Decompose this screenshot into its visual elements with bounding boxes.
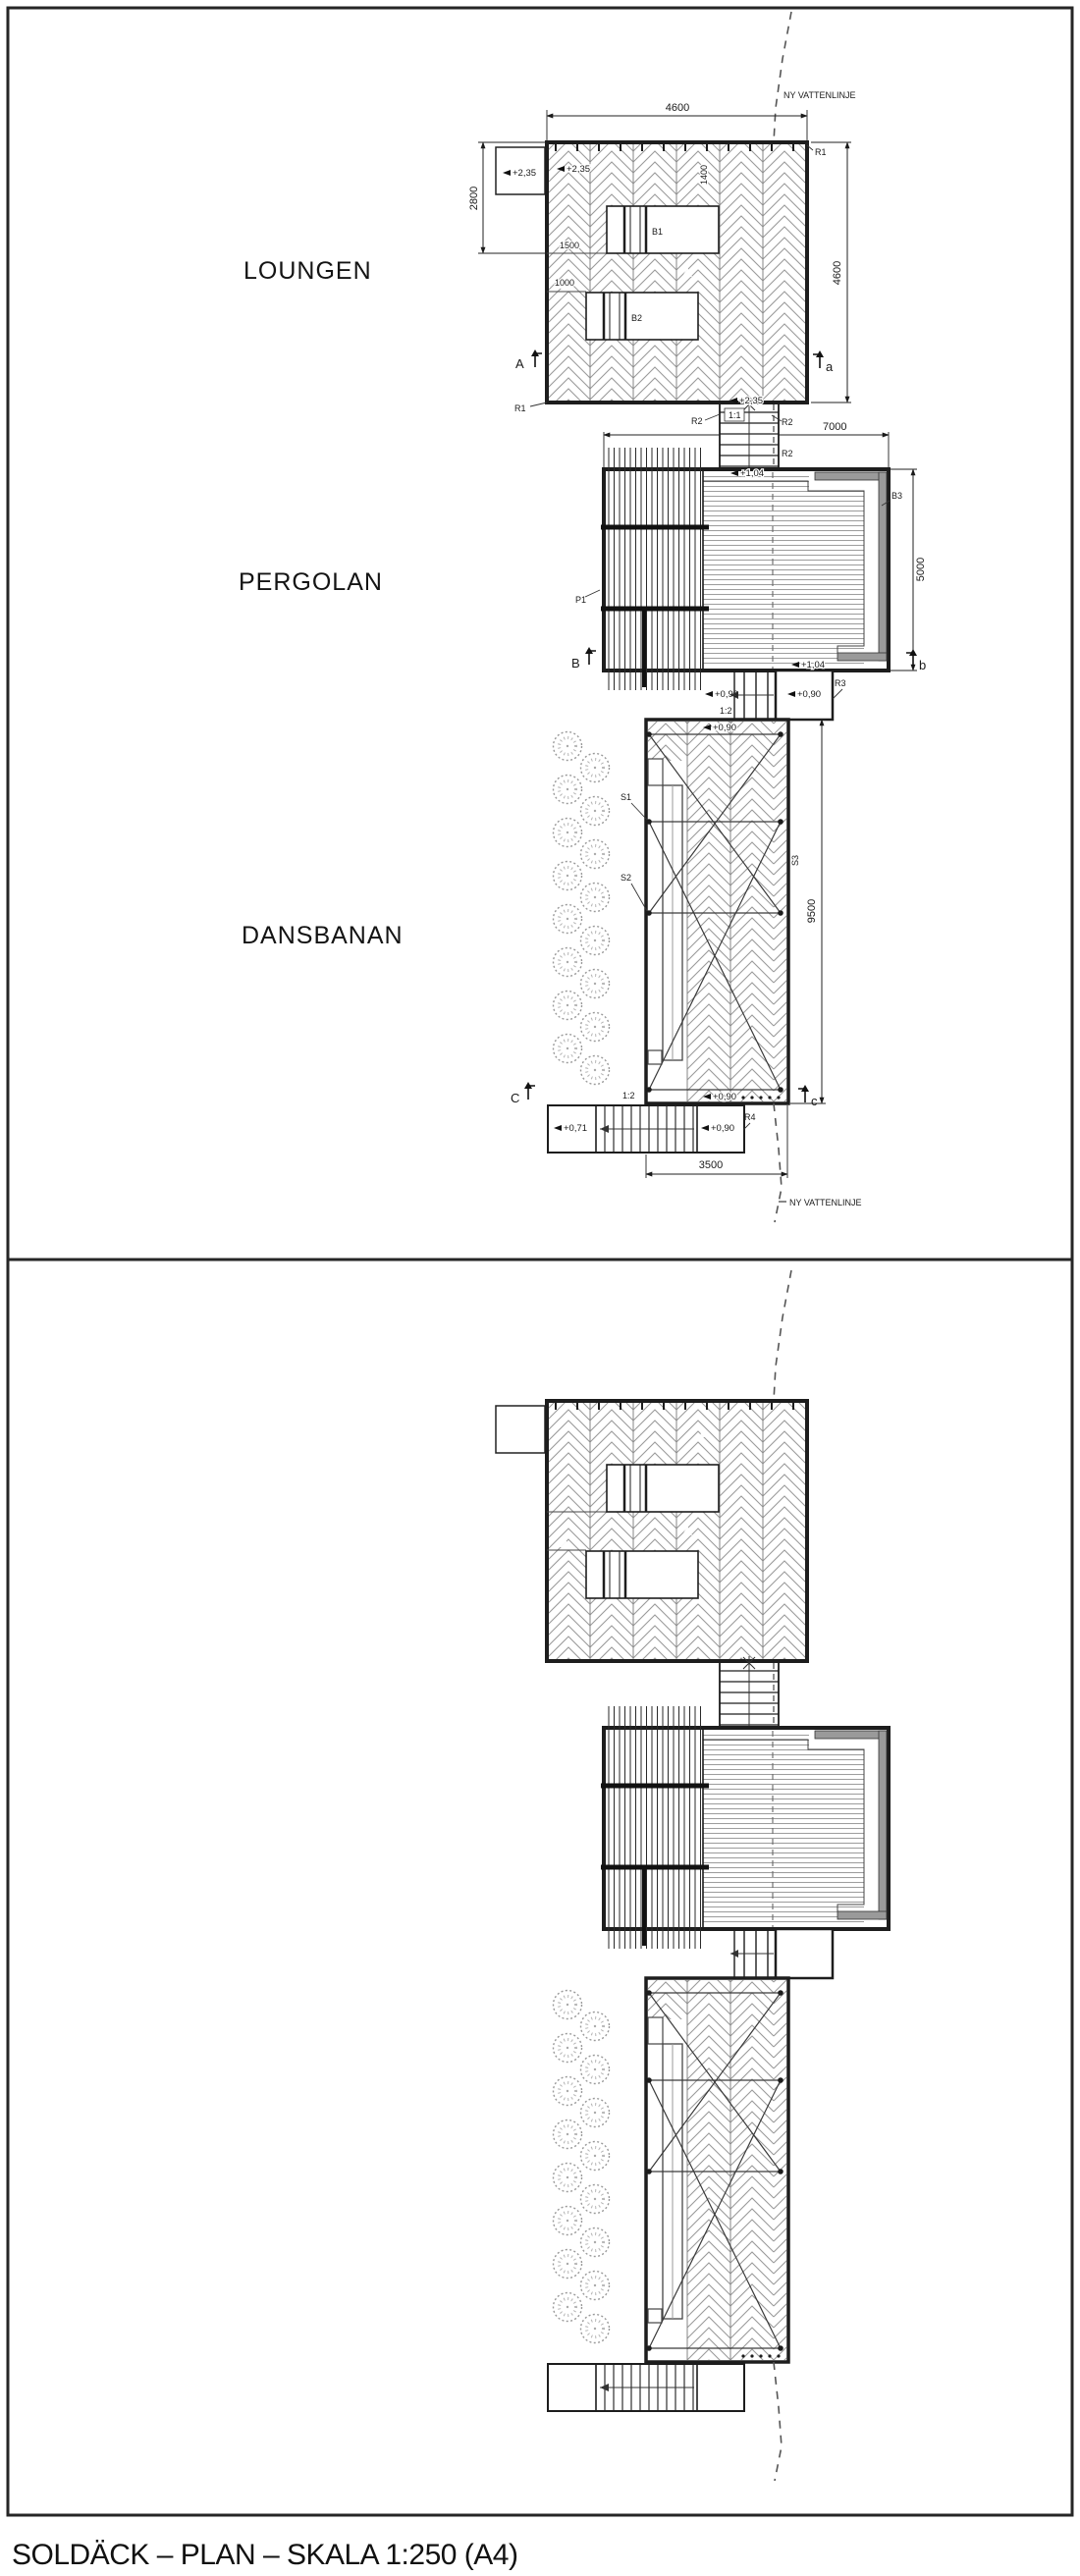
dim-dansbanan-length: 9500 — [790, 720, 826, 1103]
level-landing-right: +0,90 — [797, 689, 821, 700]
plan-canvas: LOUNGEN PERGOLAN DANSBANAN NY VATTENLINJ… — [0, 0, 1080, 2576]
level-dansbanan-top: +0,90 — [713, 723, 736, 733]
ref-s3: S3 — [790, 855, 800, 866]
level-lower-right: +0,90 — [711, 1123, 734, 1134]
area-label-loungen: LOUNGEN — [243, 257, 372, 285]
level-landing-left: +0,99 — [715, 689, 738, 700]
slope-upper: 1:1 — [729, 410, 741, 420]
sheet-title: SOLDÄCK – PLAN – SKALA 1:250 (A4) — [12, 2539, 517, 2571]
ref-b3: B3 — [891, 491, 902, 501]
ref-r2-right: R2 — [782, 417, 793, 427]
ref-b2: B2 — [631, 313, 642, 323]
section-c-ref: c — [811, 1094, 818, 1108]
ref-p1: P1 — [575, 595, 586, 605]
svg-text:4600: 4600 — [666, 102, 689, 114]
ref-b1: B1 — [652, 227, 663, 237]
level-loungen: +2,35 — [567, 164, 590, 175]
ref-s1: S1 — [621, 792, 631, 802]
plan-unannotated — [496, 1270, 889, 2481]
section-b-cut: B — [571, 656, 580, 671]
svg-text:2800: 2800 — [468, 187, 480, 210]
level-stair-top: +2,35 — [739, 396, 763, 406]
ref-r3: R3 — [835, 678, 846, 688]
sheet-frame — [8, 8, 1072, 2515]
plan-annotated — [496, 12, 889, 1222]
svg-text:7000: 7000 — [823, 421, 846, 433]
area-label-dansbanan: DANSBANAN — [242, 922, 404, 949]
section-a-ref: a — [826, 359, 834, 374]
level-lower-left: +0,71 — [564, 1123, 587, 1134]
ref-r1-top: R1 — [815, 147, 827, 157]
drawing-sheet: LOUNGEN PERGOLAN DANSBANAN NY VATTENLINJ… — [0, 0, 1080, 2576]
area-label-pergolan: PERGOLAN — [239, 568, 383, 596]
dim-1000: 1000 — [555, 278, 574, 288]
ref-s2: S2 — [621, 873, 631, 883]
ref-r4: R4 — [744, 1112, 756, 1122]
ref-r1-corner: R1 — [514, 403, 526, 413]
dim-loungen-width: 4600 — [547, 102, 807, 144]
svg-text:5000: 5000 — [915, 558, 927, 581]
svg-text:4600: 4600 — [832, 261, 843, 285]
level-pergolan-upper: +1,04 — [740, 468, 764, 479]
svg-text:9500: 9500 — [806, 899, 818, 923]
level-entry: +2,35 — [513, 168, 536, 179]
section-a-cut: A — [515, 356, 524, 371]
section-b-ref: b — [919, 658, 926, 672]
slope-middle: 1:2 — [720, 706, 732, 716]
water-label-bottom: NY VATTENLINJE — [789, 1198, 862, 1207]
ref-r2-lower: R2 — [782, 449, 793, 458]
svg-text:3500: 3500 — [699, 1159, 723, 1171]
ref-r2-left: R2 — [691, 416, 703, 426]
section-c-cut: C — [511, 1091, 519, 1105]
dim-1400: 1400 — [699, 165, 709, 185]
level-dansbanan-bottom: +0,90 — [713, 1092, 736, 1102]
dim-1500: 1500 — [560, 241, 579, 250]
level-pergolan-lower: +1,04 — [801, 660, 825, 671]
slope-lower: 1:2 — [622, 1091, 635, 1100]
water-label-top: NY VATTENLINJE — [783, 90, 856, 100]
